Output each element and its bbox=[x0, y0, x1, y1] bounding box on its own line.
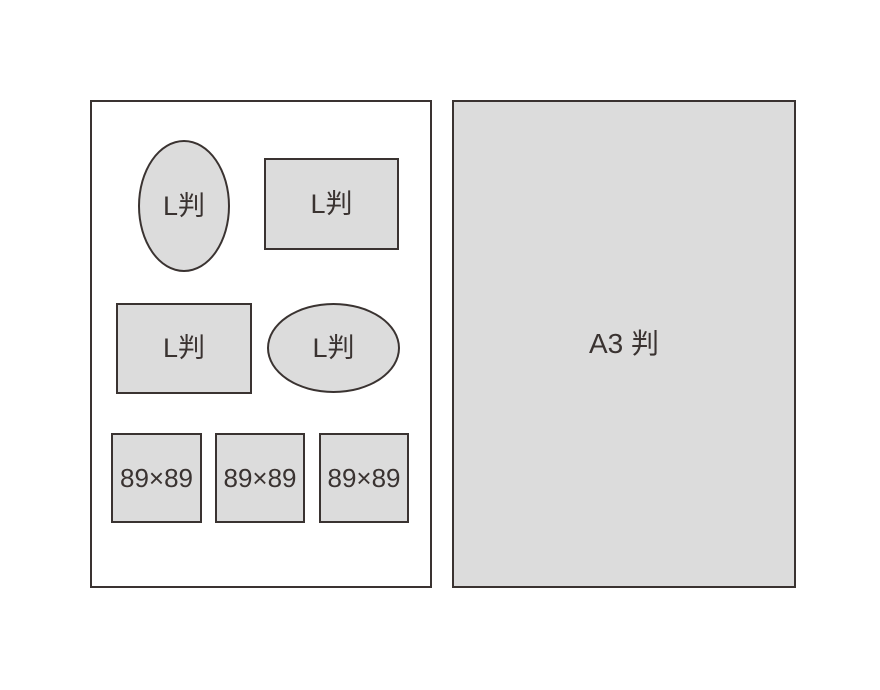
a3-sheet-label: A3 判 bbox=[589, 330, 659, 358]
shape-label: L判 bbox=[163, 193, 205, 220]
square-shape-3: 89×89 bbox=[319, 433, 409, 523]
ellipse-landscape-shape: L判 bbox=[267, 303, 400, 393]
shape-label: 89×89 bbox=[120, 465, 193, 491]
square-shape-1: 89×89 bbox=[111, 433, 202, 523]
shape-label: 89×89 bbox=[223, 465, 296, 491]
ellipse-portrait-shape: L判 bbox=[138, 140, 230, 272]
shape-label: L判 bbox=[310, 191, 352, 218]
shape-label: 89×89 bbox=[327, 465, 400, 491]
print-size-diagram: L判 L判 L判 L判 89×89 89×89 89×89 A3 判 bbox=[0, 0, 880, 690]
square-shape-2: 89×89 bbox=[215, 433, 305, 523]
shape-label: L判 bbox=[163, 335, 205, 362]
rectangle-shape-top: L判 bbox=[264, 158, 399, 250]
a3-sheet-panel: A3 判 bbox=[452, 100, 796, 588]
shape-label: L判 bbox=[312, 335, 354, 362]
l-size-sheet-panel: L判 L判 L判 L判 89×89 89×89 89×89 bbox=[90, 100, 432, 588]
rectangle-shape-middle: L判 bbox=[116, 303, 252, 394]
